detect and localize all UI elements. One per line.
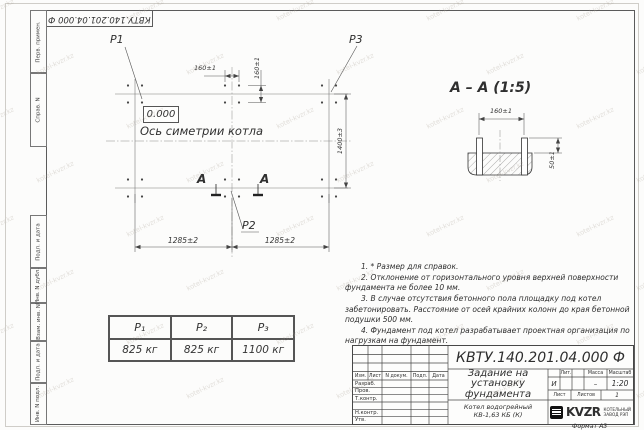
dim-span-right: 1285±2: [260, 236, 300, 245]
section-title: А – А (1:5): [450, 80, 531, 96]
load-table-header-p1: P₁: [109, 316, 171, 339]
format-label: Формат А3: [572, 423, 607, 430]
section-cut-marks: [211, 184, 263, 195]
load-label-p3: P3: [349, 33, 363, 46]
load-label-p1: P1: [110, 33, 124, 46]
dim-span-left: 1285±2: [163, 236, 203, 245]
dim-bolt-horizontal: 160±1: [190, 64, 220, 72]
section-dim-protrusion: 50±1: [548, 145, 558, 175]
section-bolt-left: [477, 138, 483, 175]
load-table-header-p2: P₂: [171, 316, 233, 339]
plan-centerlines: [106, 67, 352, 257]
note-4: 4. Фундамент под котел разрабатывает про…: [345, 326, 633, 346]
note-3: 3. В случае отсутствия бетонного пола пл…: [345, 294, 633, 324]
dim-bolt-vertical: 160±1: [253, 53, 263, 83]
note-2: 2. Отклонение от горизонтального уровня …: [345, 273, 633, 293]
drawing-sheet: Перв. примен. Справ. N Подп. и дата Инв.…: [0, 0, 644, 430]
load-table-value-p2: 825 кг: [171, 339, 233, 361]
symmetry-axis-label: Ось симетрии котла: [140, 124, 263, 138]
rotated-doc-number: КВТУ.140.201.04.000 Ф: [48, 14, 151, 24]
note-1: 1. * Размер для справок.: [345, 262, 633, 272]
load-table: P₁ P₂ P₃ 825 кг 825 кг 1100 кг: [108, 315, 295, 362]
section-letter-left: А: [197, 172, 206, 186]
load-label-p2: P2: [242, 219, 256, 232]
section-letter-right: А: [260, 172, 269, 186]
elevation-mark: 0.000: [143, 106, 179, 123]
notes-block: 1. * Размер для справок. 2. Отклонение о…: [345, 262, 633, 347]
section-bolt-right: [522, 138, 528, 175]
rotated-doc-number-box: КВТУ.140.201.04.000 Ф: [47, 11, 153, 27]
load-leader-lines: [125, 46, 357, 232]
dim-depth: 1400±3: [336, 121, 346, 161]
load-table-value-p3: 1100 кг: [232, 339, 294, 361]
section-dim-bolt-spacing: 160±1: [486, 107, 516, 115]
title-block-grid: [353, 346, 633, 424]
title-block: КВТУ.140.201.04.000 Ф Задание на установ…: [352, 345, 634, 425]
load-table-value-p1: 825 кг: [109, 339, 171, 361]
section-view-geometry: [468, 130, 532, 181]
load-table-header-p3: P₃: [232, 316, 294, 339]
